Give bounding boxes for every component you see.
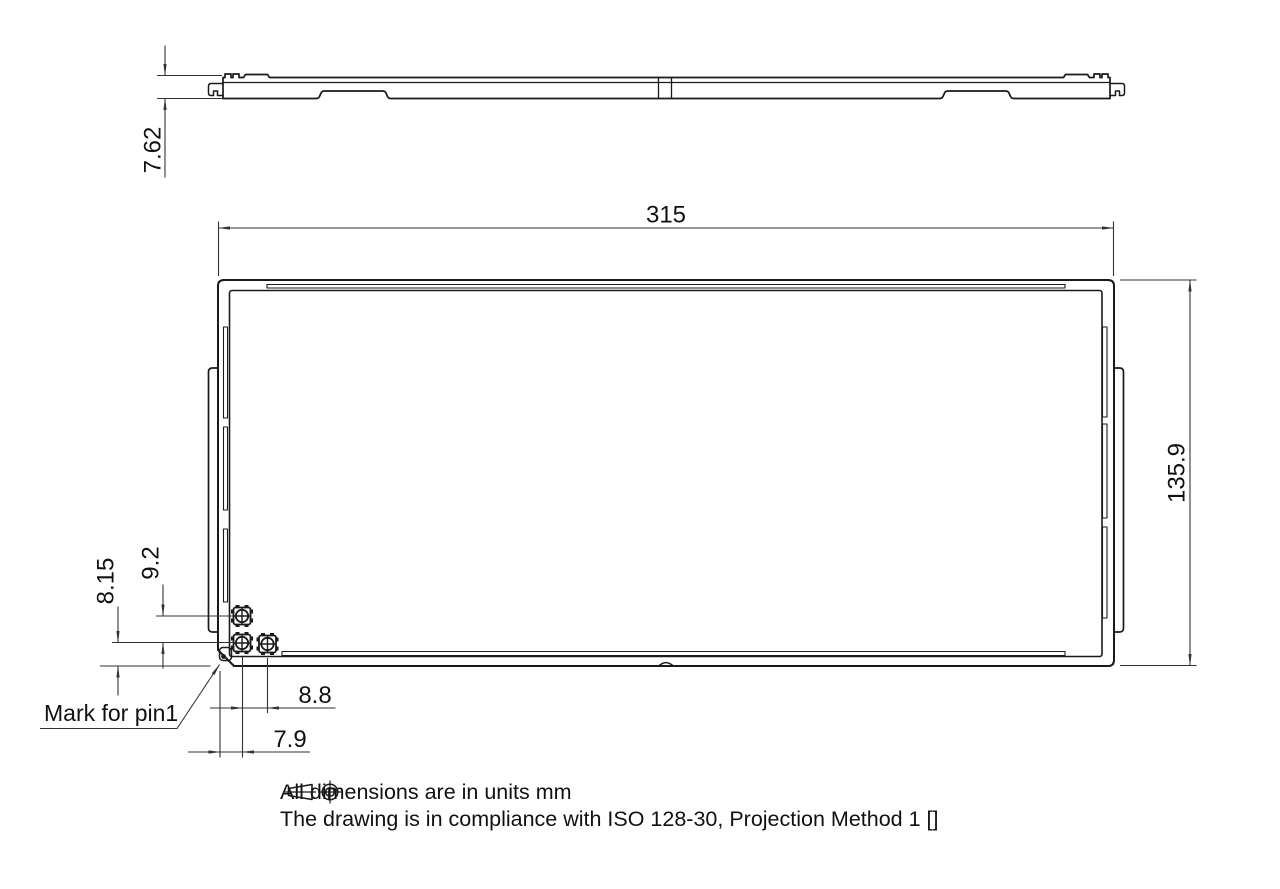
pin1-corner-dot (221, 654, 226, 659)
pin-marks (231, 605, 279, 655)
first-angle-projection-icon (283, 779, 351, 805)
ext-lines (219, 222, 1114, 277)
dimensions: 7.62 315 135.9 9.2 8.15 (40, 46, 1197, 758)
dim-pin-bottom-offset-label: 8.15 (93, 558, 120, 605)
dim-overall-width: 315 (219, 202, 1114, 277)
dim-overall-width-label: 315 (646, 202, 686, 229)
drawing-sheet: 7.62 315 135.9 9.2 8.15 (0, 0, 1280, 889)
note-line-2: The drawing is in compliance with ISO 12… (280, 806, 938, 833)
dim-pin-row-pitch-label: 9.2 (138, 546, 165, 579)
side-left-hook (209, 84, 224, 96)
left-edge-strips (224, 327, 228, 602)
pin1-callout: Mark for pin1 (40, 665, 220, 729)
side-bottom-contour (223, 91, 1110, 99)
pin-mark-bottom-left (231, 632, 253, 654)
side-center-seam (659, 78, 672, 99)
inner-outline (230, 291, 1103, 657)
left-ear (209, 368, 219, 632)
dim-pin-row-pitch: 9.2 (112, 546, 233, 668)
pin-mark-top (231, 605, 253, 627)
ext-lines (243, 657, 268, 758)
top-strip (267, 285, 1065, 289)
technical-drawing-svg: 7.62 315 135.9 9.2 8.15 (0, 0, 1280, 889)
dim-pin-left-offset-label: 7.9 (273, 726, 306, 753)
side-view (209, 74, 1125, 99)
right-ear (1114, 368, 1124, 632)
outer-outline (218, 280, 1114, 666)
ext-lines (112, 616, 233, 643)
note-line-2-suffix: ] (933, 807, 939, 831)
dim-overall-height-label: 135.9 (1164, 443, 1191, 503)
dim-side-thickness-label: 7.62 (140, 127, 167, 174)
note-line-1: All dimensions are in units mm (280, 779, 938, 806)
side-right-hook (1110, 84, 1125, 96)
front-view (209, 280, 1124, 666)
dim-pin-horizontal-pitch-label: 8.8 (298, 682, 331, 709)
bottom-strip (282, 652, 1065, 656)
side-top-contour (223, 74, 1110, 99)
pin1-mark-label: Mark for pin1 (44, 700, 178, 726)
pin-mark-bottom-right (257, 633, 279, 655)
right-edge-strips (1103, 327, 1108, 618)
dim-side-thickness: 7.62 (140, 46, 223, 178)
notes-block: All dimensions are in units mm The drawi… (280, 779, 938, 833)
dim-overall-height: 135.9 (1120, 280, 1197, 666)
note-line-2-prefix: The drawing is in compliance with ISO 12… (280, 807, 933, 831)
